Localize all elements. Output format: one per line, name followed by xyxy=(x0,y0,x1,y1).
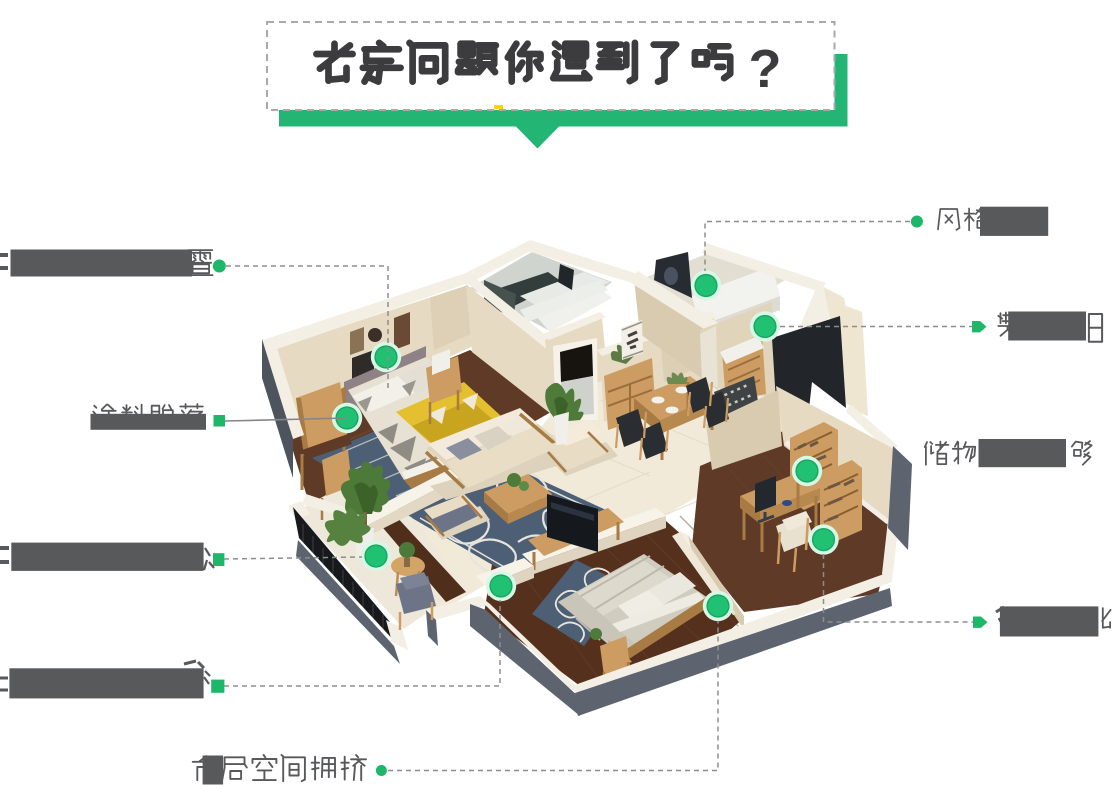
svg-text:?: ? xyxy=(749,39,782,99)
